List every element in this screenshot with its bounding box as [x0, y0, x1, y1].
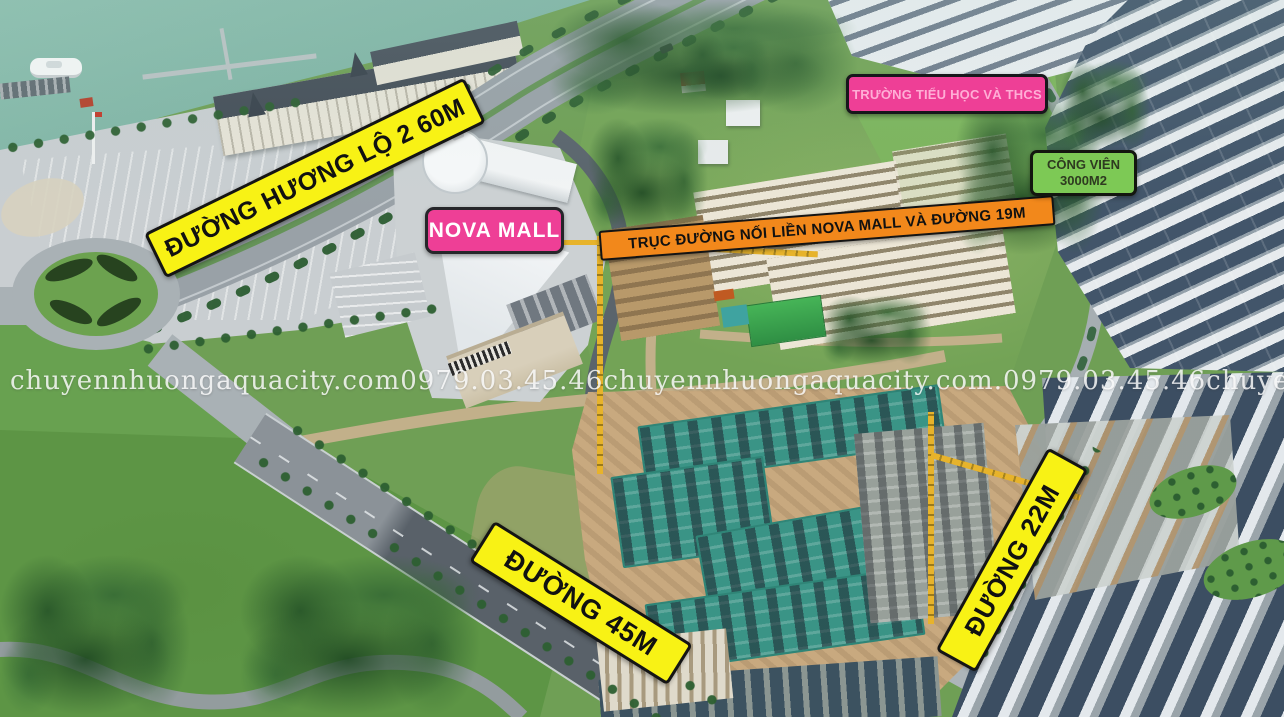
teal-shed [721, 304, 750, 327]
watermark-text: chuyennhuongaquacity.com [1206, 366, 1284, 396]
nova-mall-banner: NOVA MALL [425, 207, 564, 254]
park-banner-line2: 3000M2 [1060, 173, 1107, 189]
park-banner-line1: CÔNG VIÊN [1047, 157, 1120, 173]
watermark-text: chuyennhuongaquacity.com [10, 366, 400, 396]
watermark-row: chuyennhuongaquacity.com 0979.03.45.46 c… [0, 366, 1284, 396]
tree-cluster [680, 30, 770, 100]
tree-cluster [0, 555, 190, 715]
tree-cluster [588, 118, 708, 233]
watermark-text: 0979.03.45.46 [400, 366, 603, 396]
school-banner: TRƯỜNG TIỂU HỌC VÀ THCS [846, 74, 1048, 114]
garden-swirl [47, 295, 95, 329]
tower-crane-mast [928, 412, 934, 624]
watermark-text: 0979.03.45.46 [1003, 366, 1206, 396]
tower-crane-mast [597, 236, 603, 474]
watermark-text: chuyennhuongaquacity.com. [603, 366, 1003, 396]
park-banner: CÔNG VIÊN 3000M2 [1030, 150, 1137, 196]
aerial-photo: chuyennhuongaquacity.com 0979.03.45.46 c… [0, 0, 1284, 717]
roundabout-garden [34, 252, 158, 336]
tree-cluster [822, 295, 932, 365]
tree-cluster [1060, 60, 1150, 150]
